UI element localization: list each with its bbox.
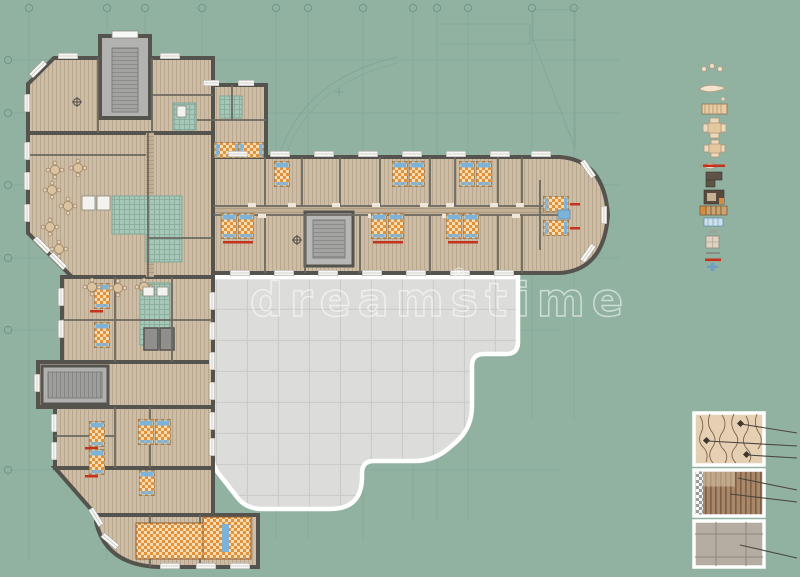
bed: [543, 220, 569, 236]
red-marker-icon: [705, 259, 721, 262]
bed: [138, 419, 154, 445]
bed: [139, 470, 155, 496]
striped-chest-icon: [700, 206, 727, 215]
bed: [89, 449, 105, 475]
single-bed-icon: [702, 104, 727, 114]
stair-tower-flight: [112, 48, 138, 112]
bed: [238, 213, 254, 239]
bed: [94, 322, 110, 348]
wardrobe-icon: [704, 190, 724, 204]
bed: [459, 161, 475, 187]
bedside-blue: [558, 210, 570, 219]
elevator-1: [144, 328, 158, 350]
floor-plan-drawing: dreamstime ®: [0, 0, 800, 577]
bed: [89, 421, 105, 447]
watermark: dreamstime ®: [250, 266, 630, 327]
bed: [463, 213, 479, 239]
side-table-icon: [706, 236, 719, 248]
carpet: [136, 523, 214, 559]
bed: [409, 161, 425, 187]
bed: [476, 161, 492, 187]
bed: [543, 196, 569, 212]
bed: [446, 213, 462, 239]
stair-central-flight: [313, 220, 345, 258]
carpet-runner: [222, 524, 229, 552]
bed: [274, 161, 290, 187]
watermark-registered-icon: ®: [452, 266, 466, 282]
door-leaf-icon: [709, 230, 717, 233]
wall-segment-icon: [706, 252, 720, 254]
bed: [388, 213, 404, 239]
floor-plan-stage: dreamstime ®: [0, 0, 800, 577]
stub-tile: [220, 96, 242, 118]
watermark-text: dreamstime: [250, 273, 630, 327]
bed: [221, 213, 237, 239]
bed: [371, 213, 387, 239]
stair-west-flight: [48, 372, 102, 398]
bed: [392, 161, 408, 187]
glazed-partition-icon: [704, 218, 723, 226]
wing-west-lower: [55, 407, 213, 468]
single-bed-knob-icon: [721, 97, 725, 101]
bed: [155, 419, 171, 445]
